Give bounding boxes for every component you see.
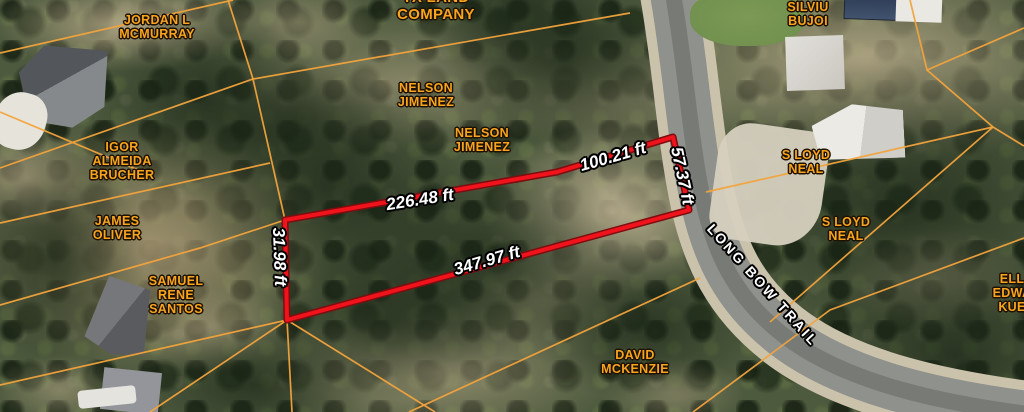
owner-label: SILVIU BUJOI — [787, 0, 828, 28]
owner-label: NELSON JIMENEZ — [398, 81, 454, 109]
parcel-boundary-line — [0, 220, 285, 305]
owner-label: TX LAND COMPANY — [397, 0, 475, 24]
parcel-overlay-layer — [0, 0, 1024, 412]
parcel-boundary-line — [706, 127, 993, 192]
owner-label: DAVID MCKENZIE — [601, 348, 669, 376]
parcel-boundary-line — [150, 320, 287, 412]
parcel-boundary-line — [287, 320, 292, 412]
parcel-boundary-line — [409, 278, 700, 412]
owner-label: JORDAN L MCMURRAY — [119, 13, 195, 41]
parcel-boundary-line — [0, 0, 233, 53]
parcel-boundary-line — [0, 320, 287, 385]
measurement-label: 31.98 ft — [268, 227, 290, 286]
owner-label: NELSON JIMENEZ — [454, 126, 510, 154]
parcel-boundary-line — [993, 127, 1024, 146]
owner-label: SAMUEL RENE SANTOS — [149, 274, 204, 316]
parcel-boundary-line — [927, 28, 1024, 70]
owner-label: S LOYD NEAL — [782, 148, 830, 176]
owner-label: IGOR ALMEIDA BRUCHER — [90, 140, 155, 182]
owner-label: JAMES OLIVER — [93, 214, 141, 242]
owner-label: ELL EDWA KUE — [993, 272, 1024, 314]
satellite-parcel-map[interactable]: LONG BOW TRAIL JORDAN L MCMURRAYTX LAND … — [0, 0, 1024, 412]
owner-label: S LOYD NEAL — [822, 215, 870, 243]
parcel-boundary-line — [228, 0, 285, 220]
parcel-boundary-line — [910, 0, 993, 127]
highlighted-parcel-outline — [285, 137, 689, 320]
parcel-boundary-line — [287, 320, 435, 412]
